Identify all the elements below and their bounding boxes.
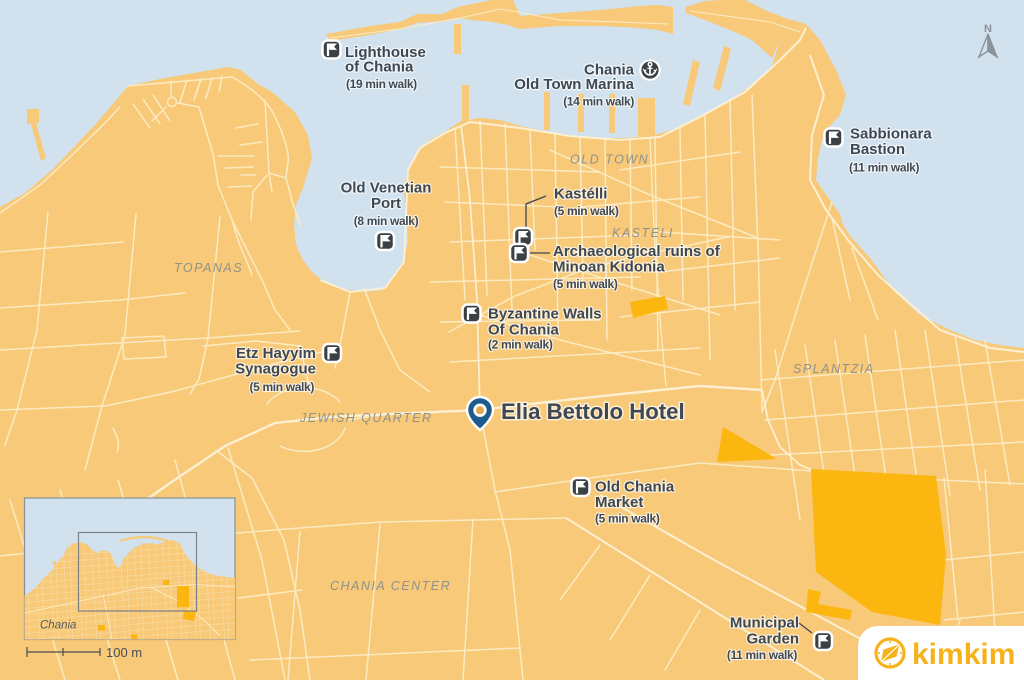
svg-text:(5 min walk): (5 min walk) [554,204,619,218]
svg-text:Kastélli: Kastélli [554,186,607,203]
svg-text:N: N [984,23,992,35]
svg-text:Old Town Marina: Old Town Marina [514,76,634,93]
svg-text:(14 min walk): (14 min walk) [563,95,634,109]
svg-text:CHANIA CENTER: CHANIA CENTER [330,579,451,593]
svg-text:KASTELI: KASTELI [612,226,674,240]
svg-text:(8 min walk): (8 min walk) [354,214,419,228]
svg-text:(5 min walk): (5 min walk) [553,277,618,291]
svg-text:kimkim: kimkim [912,638,1015,671]
svg-text:Of Chania: Of Chania [488,322,559,339]
svg-text:Archaeological ruins of: Archaeological ruins of [553,243,721,260]
svg-text:(5 min walk): (5 min walk) [250,380,315,394]
svg-text:(11 min walk): (11 min walk) [849,161,919,175]
svg-text:Municipal: Municipal [730,615,799,632]
svg-text:Sabbionara: Sabbionara [850,126,932,143]
svg-text:Bastion: Bastion [850,141,905,158]
svg-text:Byzantine Walls: Byzantine Walls [488,306,602,323]
svg-text:(19 min walk): (19 min walk) [346,77,417,91]
svg-text:of Chania: of Chania [345,59,414,76]
svg-text:Minoan Kidonia: Minoan Kidonia [553,259,665,276]
svg-text:Synagogue: Synagogue [235,361,316,378]
svg-text:SPLANTZIA: SPLANTZIA [793,362,875,376]
svg-text:Etz Hayyim: Etz Hayyim [236,345,316,362]
svg-text:(11 min walk): (11 min walk) [727,648,797,662]
svg-text:Elia Bettolo Hotel: Elia Bettolo Hotel [501,399,685,424]
svg-text:OLD TOWN: OLD TOWN [570,153,649,167]
svg-text:Old Venetian: Old Venetian [341,180,432,197]
svg-text:Old Chania: Old Chania [595,479,675,496]
svg-text:Chania: Chania [40,620,76,632]
svg-text:Market: Market [595,494,643,511]
svg-text:(5 min walk): (5 min walk) [595,512,660,526]
svg-text:JEWISH QUARTER: JEWISH QUARTER [299,411,433,425]
svg-text:Garden: Garden [746,631,799,648]
svg-text:100 m: 100 m [106,645,142,660]
svg-text:TOPANAS: TOPANAS [174,261,243,275]
svg-text:(2 min walk): (2 min walk) [488,338,553,352]
svg-text:Port: Port [371,195,401,212]
